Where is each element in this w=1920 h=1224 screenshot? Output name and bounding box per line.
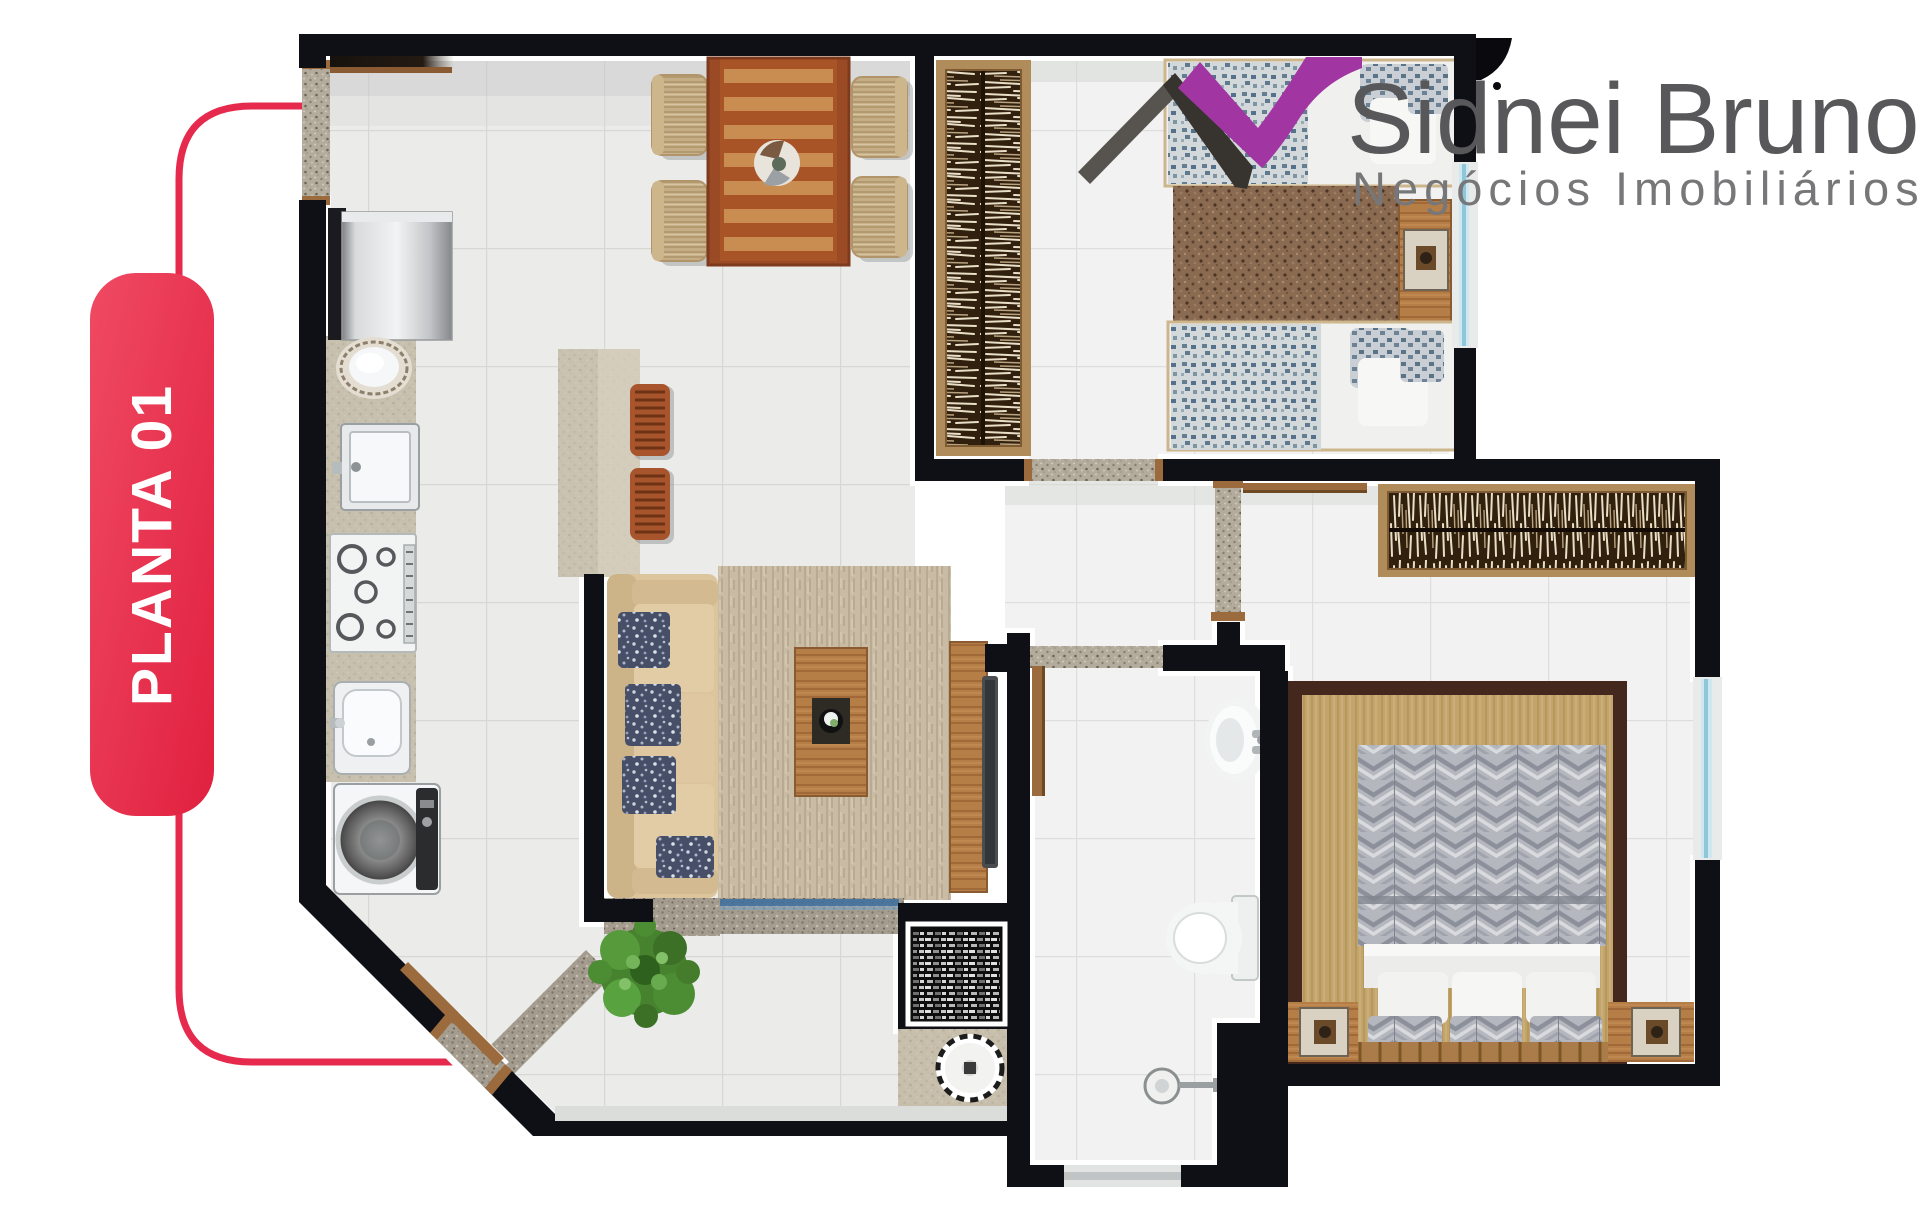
- svg-text:Negócios Imobiliários: Negócios Imobiliários: [1352, 162, 1920, 215]
- svg-text:PLANTA 01: PLANTA 01: [120, 384, 184, 706]
- svg-text:Sidnei Bruno: Sidnei Bruno: [1347, 63, 1920, 175]
